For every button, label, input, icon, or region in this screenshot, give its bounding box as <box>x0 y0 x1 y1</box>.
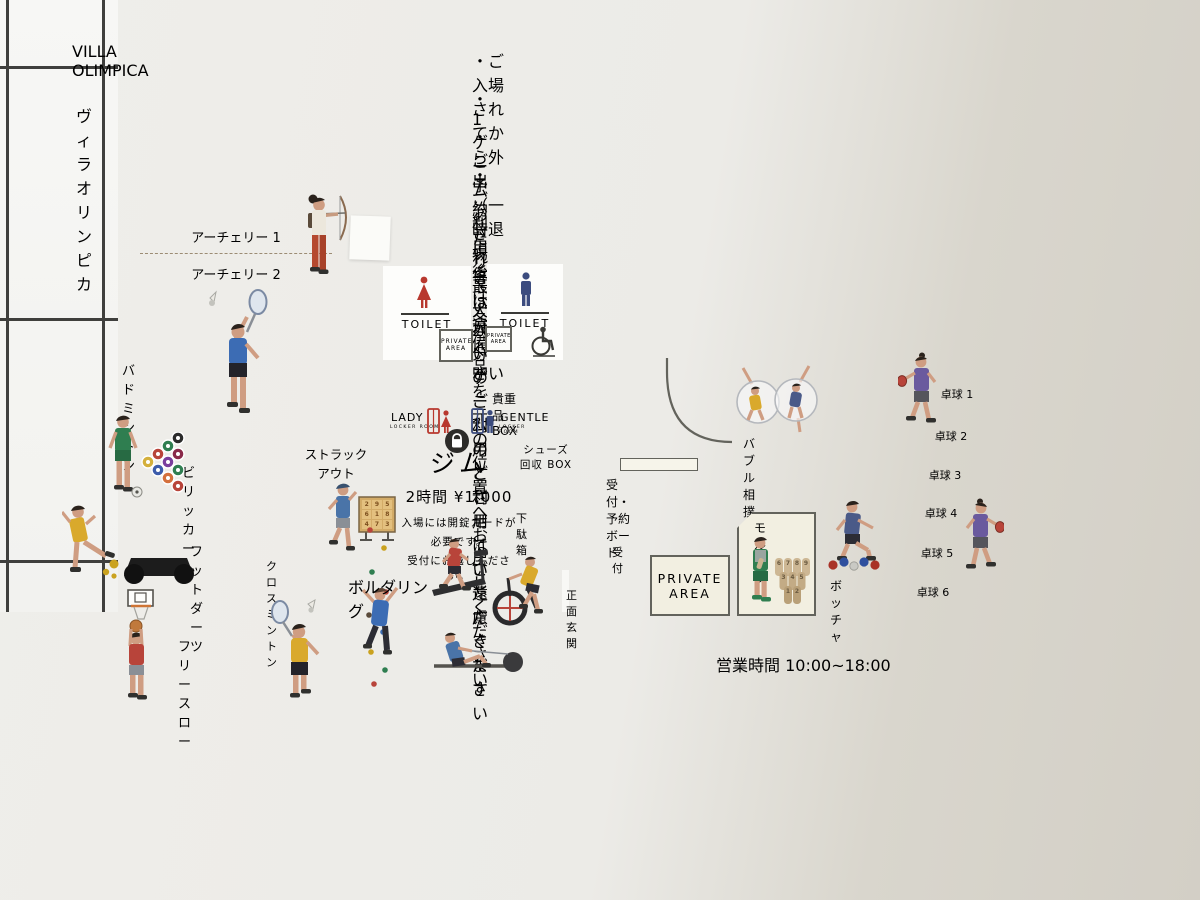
gentle-locker-icon <box>471 408 497 435</box>
molkky-pins-icon: 6789 345 12 <box>774 556 812 610</box>
private-area-box: PRIVATE AREA <box>485 326 512 352</box>
gym-note: 入場には開錠カードが <box>396 515 522 530</box>
wheelchair-icon <box>529 326 557 358</box>
svg-text:1: 1 <box>786 588 790 595</box>
archery-target-card <box>349 215 391 260</box>
zone-label-free-throw: フリースロー <box>178 636 191 750</box>
zone-label-boccia: ボッチャ <box>830 577 842 645</box>
zone-table-tennis-5: 卓球 5 <box>912 539 962 566</box>
reception-board-counter <box>620 458 698 471</box>
wall-stub <box>471 308 487 310</box>
free-throw-shooter-figure <box>116 616 156 702</box>
svg-text:6: 6 <box>777 560 781 567</box>
billiard-balls-icon <box>140 432 186 496</box>
gentle-locker-label: GENTLE <box>500 411 550 424</box>
table-tennis-player-figure <box>962 498 1004 578</box>
svg-text:2: 2 <box>795 588 799 595</box>
svg-text:4: 4 <box>790 574 794 581</box>
zone-table-tennis-3: 卓球 3 <box>920 462 970 488</box>
toilet-room-men: TOILET PRIVATE AREA <box>487 264 563 360</box>
rowing-machine-figure <box>428 620 528 680</box>
men-icon <box>513 272 539 308</box>
treadmill-runner-figure <box>426 536 492 606</box>
crossminton-player-figure <box>268 596 332 700</box>
foot-darts-kicker-figure <box>62 500 124 586</box>
photo-scene: VILLA OLIMPICA ヴィラオリンピカ ・ご入場されてから外出（一時退場… <box>0 0 1200 900</box>
toilet-room-women: TOILET PRIVATE AREA <box>383 266 471 360</box>
gym-price: 2時間 ¥1,000 <box>396 486 522 507</box>
toilet-baseline <box>401 313 449 315</box>
private-area-room: PRIVATE AREA <box>650 555 730 616</box>
toilet-baseline <box>501 312 549 314</box>
business-hours-text: 営業時間 10:00~18:00 <box>716 656 891 675</box>
lady-locker-label: LADY <box>391 411 424 424</box>
table-tennis-player-figure <box>898 352 940 432</box>
svg-text:7: 7 <box>786 560 790 567</box>
svg-text:8: 8 <box>795 560 799 567</box>
svg-text:3: 3 <box>781 574 785 581</box>
gym-label: ジム <box>396 444 522 480</box>
zone-bubble-sumo-2 <box>827 368 885 452</box>
women-icon <box>411 276 437 310</box>
boccia-player-figure <box>830 498 880 564</box>
poster-title: VILLA OLIMPICA <box>72 42 149 80</box>
label-reception: 受付 <box>612 544 623 576</box>
strike-out-number: 9 <box>372 500 381 509</box>
tile-grout <box>6 0 9 612</box>
badminton-player-figure <box>200 288 280 434</box>
business-hours-badge: 営業時間 10:00~18:00 <box>716 652 1004 702</box>
boccia-balls-icon <box>826 556 882 574</box>
zone-label-bubble-sumo: バブル相撲 <box>743 435 755 520</box>
bubble-sumo-figures <box>730 360 826 434</box>
curved-partition-wall <box>640 356 740 448</box>
label-main-entrance: 正面玄関 <box>566 587 577 651</box>
strike-out-thrower-figure <box>326 480 360 552</box>
locker-room-caption: LOCKER ROOM <box>499 425 548 435</box>
label-shoe-rack: 下駄箱 <box>516 510 527 558</box>
billicker-player-figure <box>102 412 144 502</box>
svg-text:9: 9 <box>804 560 808 567</box>
strike-out-number: 5 <box>383 500 392 509</box>
private-area-box: PRIVATE AREA <box>439 329 473 362</box>
svg-text:5: 5 <box>799 574 803 581</box>
zone-label-strike-out: ストラック アウト <box>300 444 372 482</box>
bouldering-label-pill: ボルダリング <box>348 574 430 593</box>
zone-table-tennis-6: 卓球 6 <box>908 579 958 605</box>
zone-table-tennis-4: 卓球 4 <box>916 500 966 526</box>
archer-figure <box>288 190 352 294</box>
foot-dartboard-icon <box>122 502 196 584</box>
strike-out-number: 2 <box>362 500 371 509</box>
